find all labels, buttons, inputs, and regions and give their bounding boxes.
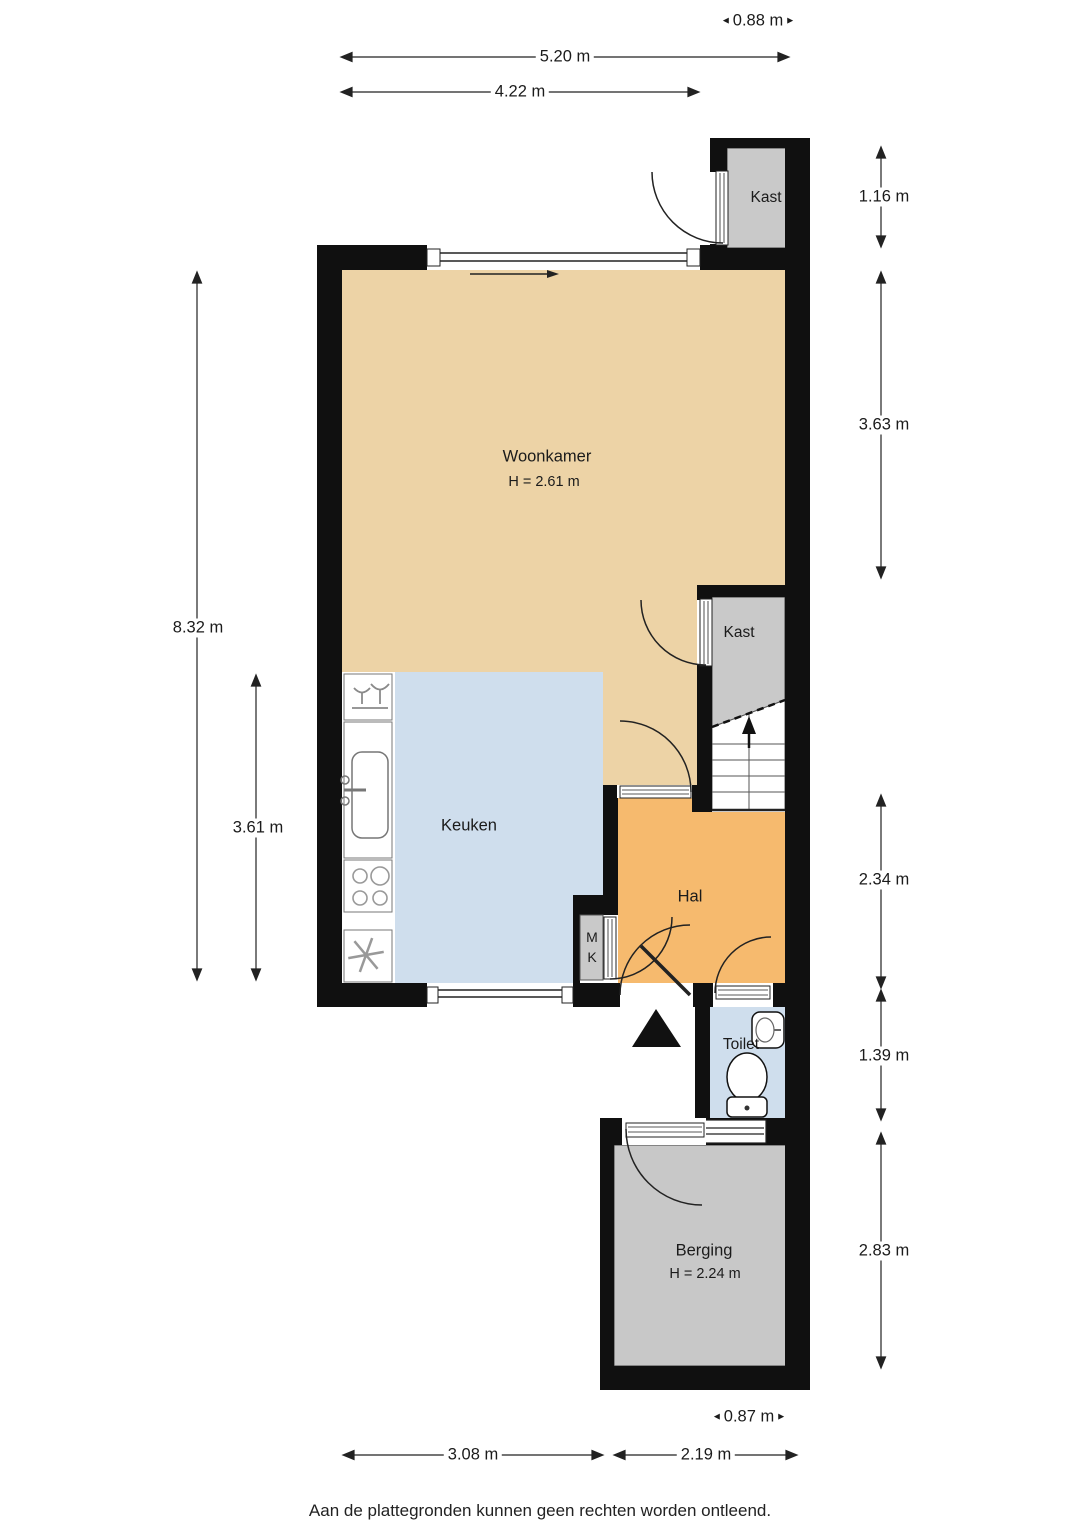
dim-line-right-hal <box>877 795 886 988</box>
dim-label-top-total: 5.20 m <box>536 48 594 67</box>
room-label-mk: MK <box>586 927 598 967</box>
floorplan-page: ◄0.88 m► 5.20 m 4.22 m 8.32 m 3.61 m 1.1… <box>0 0 1080 1527</box>
floorplan-drawing <box>0 0 1080 1527</box>
dim-label-left-keuken: 3.61 m <box>229 819 287 838</box>
dim-label-left-total: 8.32 m <box>169 619 227 638</box>
kitchen-fixtures <box>341 674 392 982</box>
dim-arrow-left-icon: ◄ <box>719 16 733 27</box>
toilet-window <box>704 1120 766 1143</box>
room-height-woonkamer: H = 2.61 m <box>508 474 579 490</box>
room-label-kast-top: Kast <box>750 189 781 207</box>
dim-label-right-berging: 2.83 m <box>855 1242 913 1261</box>
kitchen-window <box>427 983 573 1007</box>
dim-label-right-hal: 2.34 m <box>855 871 913 890</box>
dim-label-bottom-toilet: ◄0.87 m► <box>710 1408 788 1427</box>
dim-label-bottom-berging: 2.19 m <box>677 1446 735 1465</box>
dim-arrow-right-icon: ► <box>783 16 797 27</box>
dishrack-box <box>344 674 392 720</box>
dim-label-right-woonkamer: 3.63 m <box>855 416 913 435</box>
dim-label-right-kast: 1.16 m <box>855 188 913 207</box>
dim-arrow-right-icon: ► <box>774 1412 788 1423</box>
living-room-window <box>427 245 700 270</box>
room-label-toilet: Toilet <box>723 1036 759 1054</box>
dim-label-bottom-keuken: 3.08 m <box>444 1446 502 1465</box>
entrance-arrow-icon <box>632 1009 681 1047</box>
dim-label-right-toilet: 1.39 m <box>855 1047 913 1066</box>
room-label-woonkamer: Woonkamer <box>503 448 592 467</box>
dim-arrow-left-icon: ◄ <box>710 1412 724 1423</box>
floor-keuken <box>395 672 603 983</box>
room-label-berging: Berging <box>676 1242 733 1261</box>
toilet-bowl-icon <box>727 1053 767 1101</box>
room-label-hal: Hal <box>678 888 703 907</box>
kast-top-door <box>652 171 728 245</box>
room-height-berging: H = 2.24 m <box>669 1266 740 1282</box>
floors <box>342 148 786 1366</box>
disclaimer-text: Aan de plattegronden kunnen geen rechten… <box>309 1501 771 1521</box>
room-label-keuken: Keuken <box>441 817 497 836</box>
dim-label-top-inner: 4.22 m <box>491 83 549 102</box>
room-label-kast-mid: Kast <box>723 624 754 642</box>
dim-label-kast-top-width: ◄0.88 m► <box>719 12 797 31</box>
